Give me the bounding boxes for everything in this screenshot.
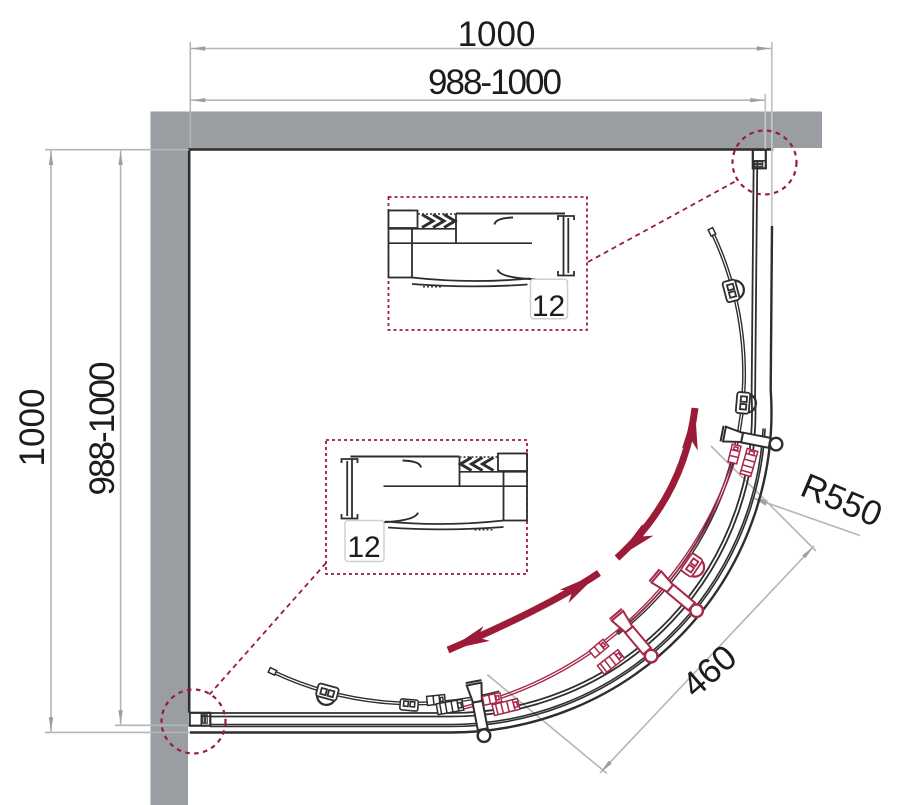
svg-text:988-1000: 988-1000 [83, 362, 122, 495]
svg-text:1000: 1000 [458, 15, 536, 54]
svg-text:988-1000: 988-1000 [428, 63, 561, 102]
svg-text:12: 12 [347, 531, 380, 564]
svg-text:12: 12 [532, 290, 565, 323]
svg-text:1000: 1000 [13, 389, 52, 467]
